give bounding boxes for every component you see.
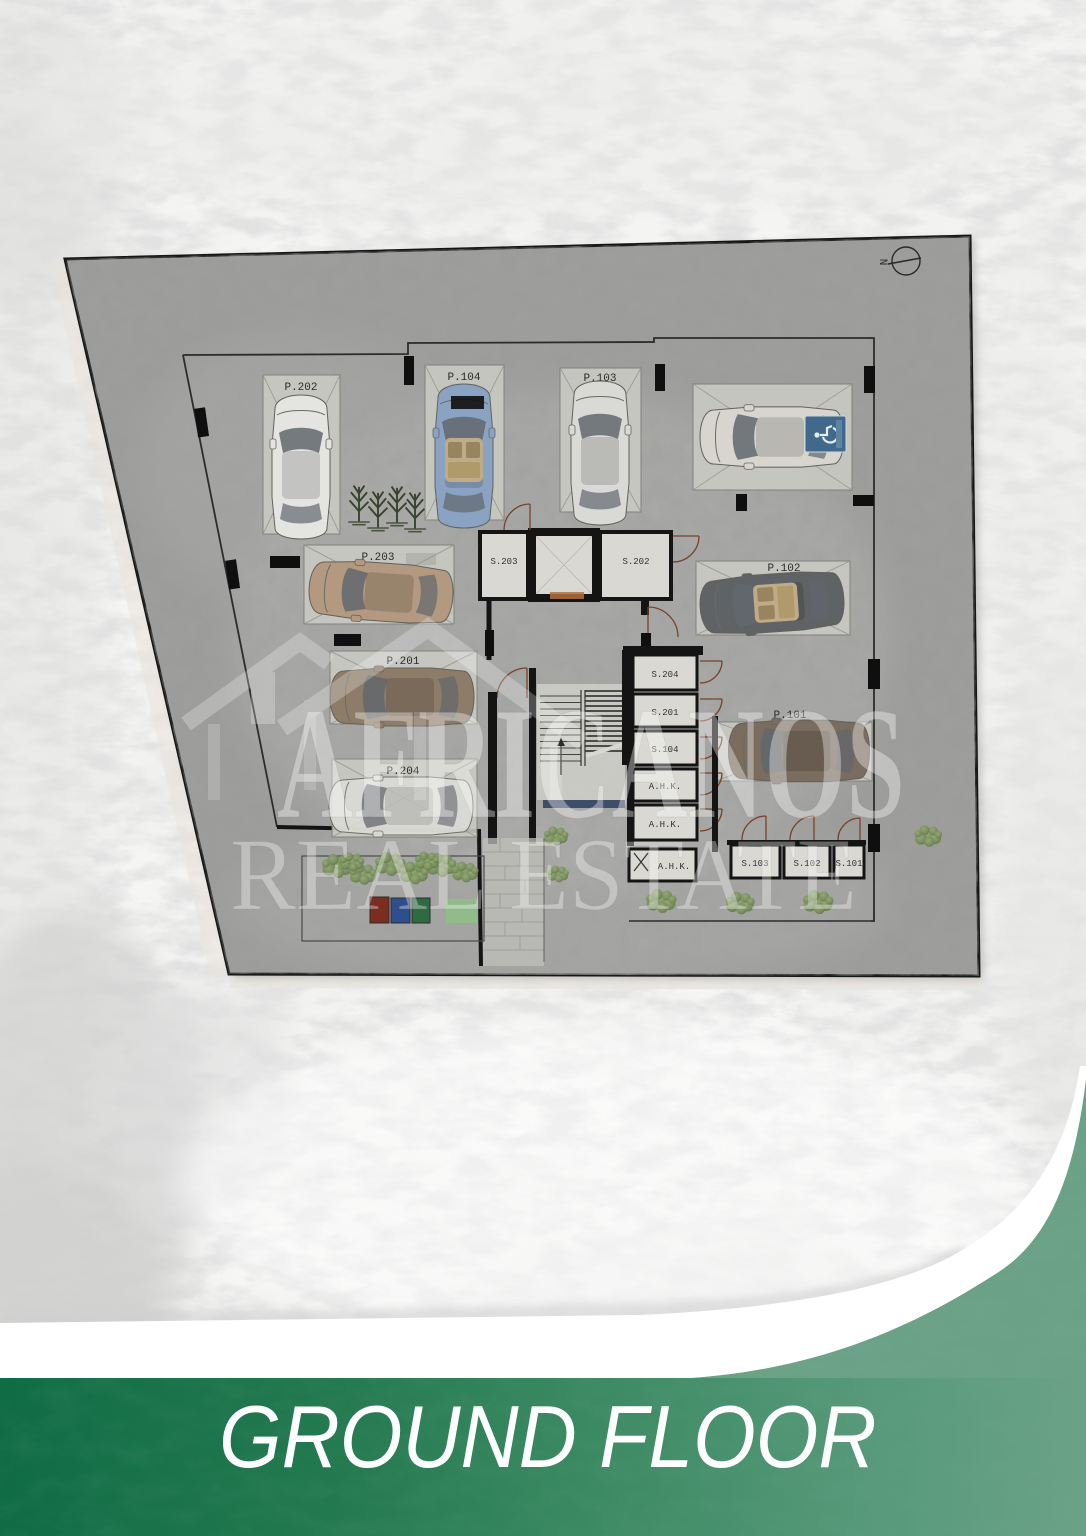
svg-text:REAL ESTATE: REAL ESTATE bbox=[230, 818, 857, 932]
svg-text:N: N bbox=[876, 259, 888, 266]
svg-text:S.203: S.203 bbox=[490, 557, 517, 567]
svg-text:P.104: P.104 bbox=[447, 372, 480, 384]
svg-text:GROUND FLOOR: GROUND FLOOR bbox=[219, 1388, 877, 1486]
svg-text:S.202: S.202 bbox=[622, 557, 649, 567]
svg-text:P.202: P.202 bbox=[284, 382, 317, 394]
